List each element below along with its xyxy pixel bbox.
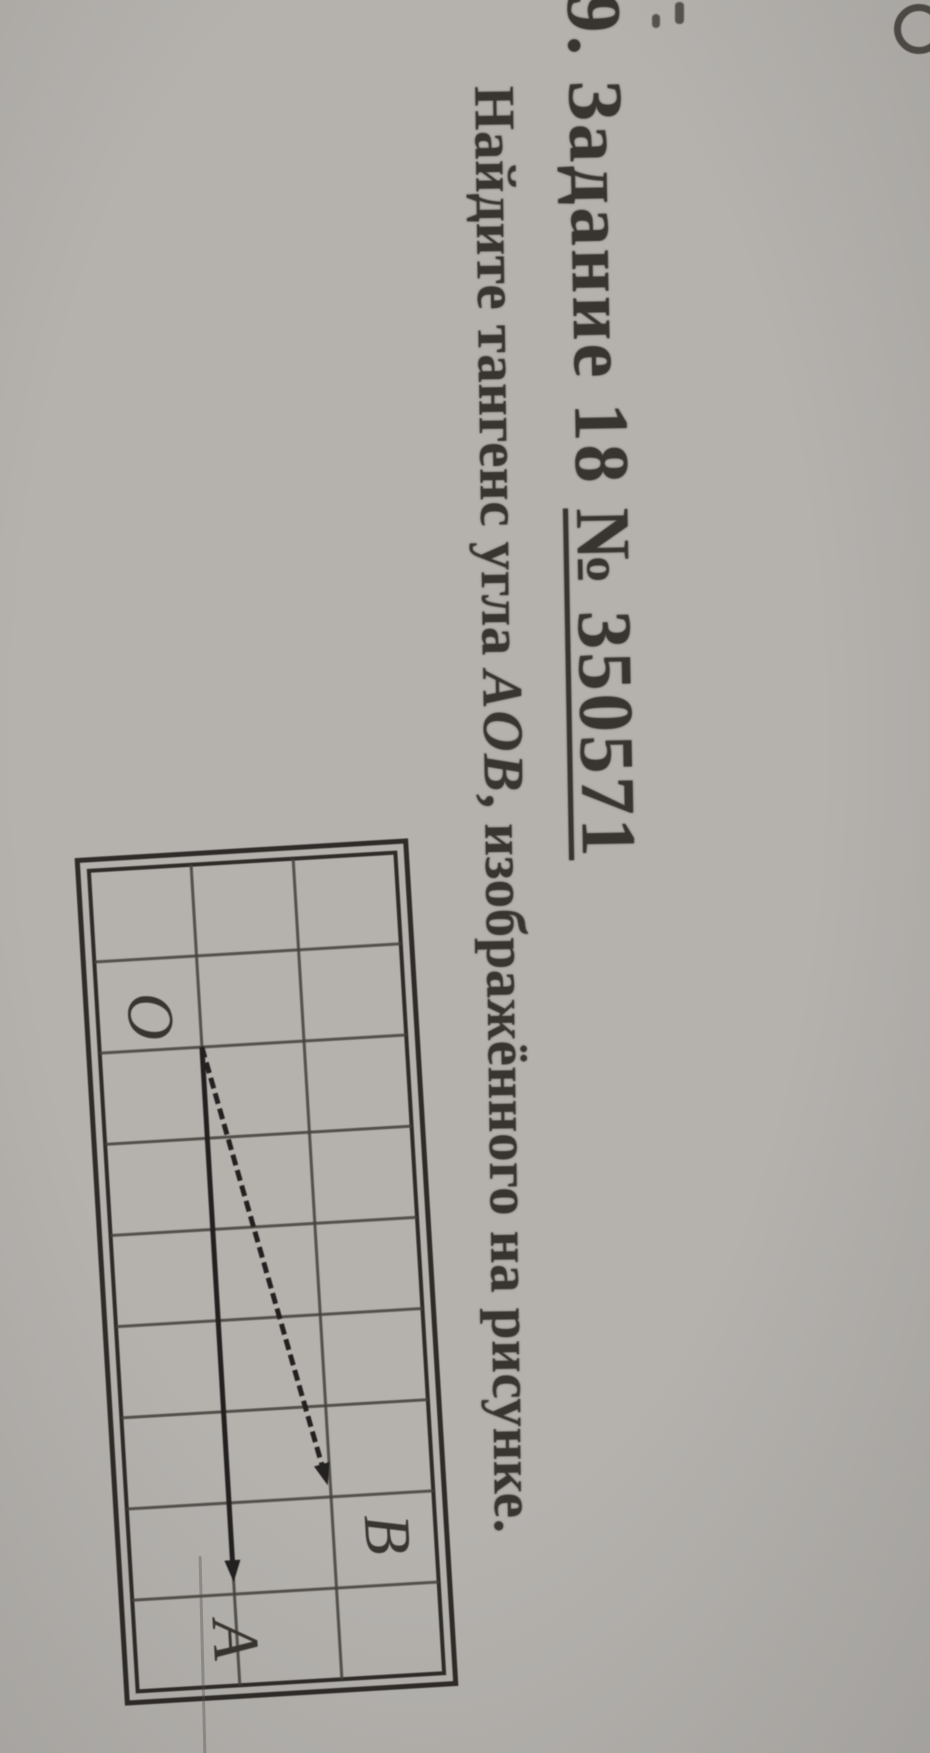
- figure-label-B: B: [350, 1512, 425, 1557]
- figure-svg: OBA: [74, 838, 459, 1706]
- task-number: № 350571: [560, 507, 652, 860]
- figure-label-O: O: [112, 990, 188, 1042]
- task-title-prefix: 9. Задание 18: [551, 0, 646, 509]
- task-title: 9. Задание 18 № 350571: [549, 0, 653, 860]
- problem-statement: Найдите тангенс угла AOB, изображённого …: [461, 86, 546, 1534]
- problem-text-after: , изображённого на рисунке.: [472, 793, 545, 1533]
- problem-text-before: Найдите тангенс угла: [462, 86, 533, 671]
- angle-name: AOB: [470, 670, 535, 794]
- photo-background: 9. Задание 18 № 350571 Найдите тангенс у…: [0, 0, 930, 1753]
- grid-figure: OBA: [74, 838, 459, 1706]
- rotated-page: 9. Задание 18 № 350571 Найдите тангенс у…: [0, 0, 930, 1753]
- cut-glyph-mark: [894, 4, 930, 54]
- edge-glyph-fragment: [652, 14, 660, 28]
- edge-glyph-fragment: [675, 2, 684, 24]
- figure-label-A: A: [197, 1613, 273, 1662]
